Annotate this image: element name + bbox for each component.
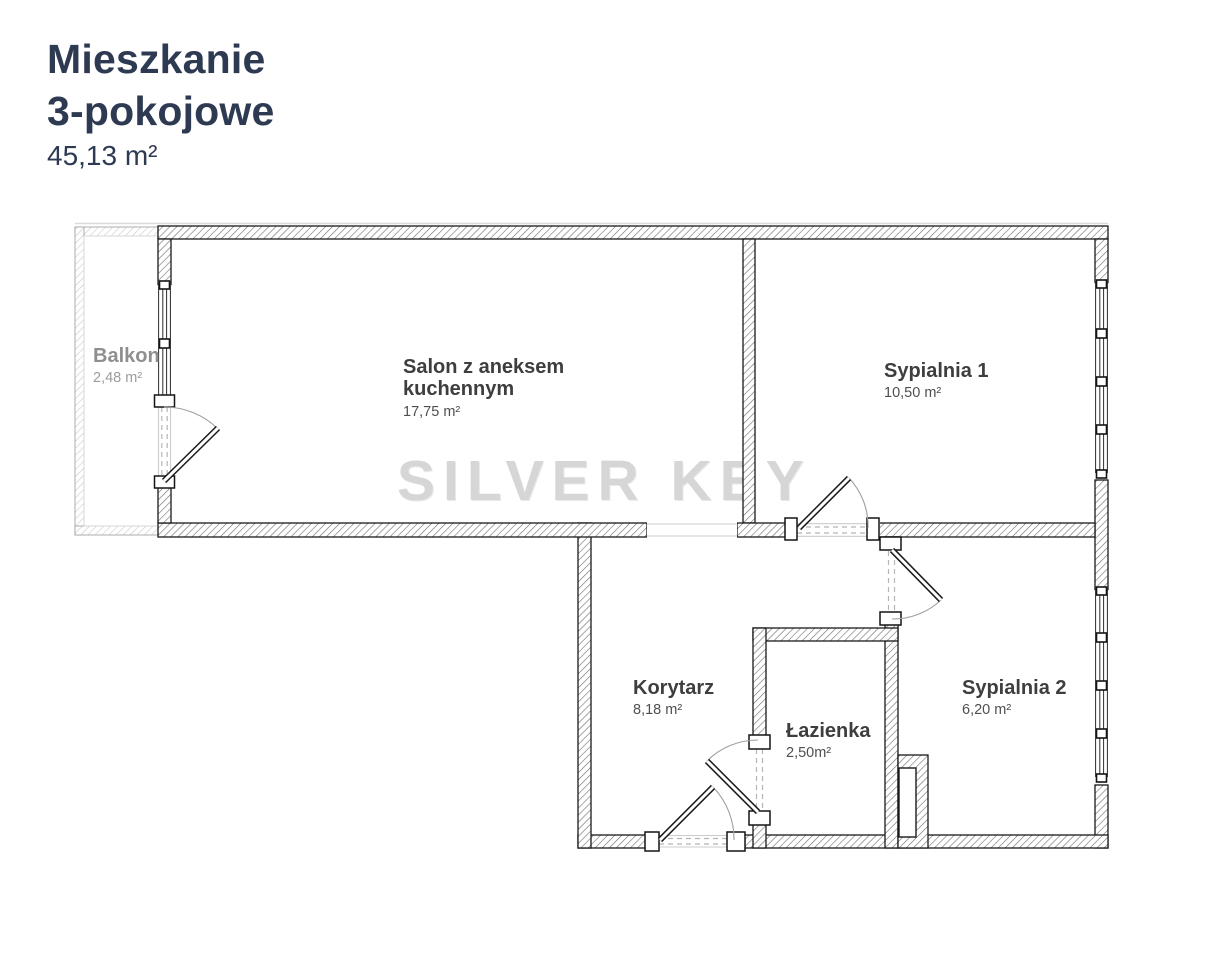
room-label-sypialnia-2: Sypialnia 2 6,20 m²: [962, 677, 1067, 718]
room-area-value: 17,75 m²: [403, 404, 564, 420]
room-area-value: 10,50 m²: [884, 385, 989, 401]
room-name: Sypialnia 2: [962, 677, 1067, 699]
wall-corridor-left: [578, 523, 591, 848]
room-area-value: 2,50m²: [786, 745, 870, 761]
wall-right-upper: [1095, 239, 1108, 283]
room-name: Korytarz: [633, 677, 714, 699]
floor-plan-svg: [0, 0, 1214, 960]
room-area-value: 6,20 m²: [962, 702, 1067, 718]
room-name: Łazienka: [786, 720, 870, 742]
room-name: Balkon: [93, 345, 160, 367]
floor-plan-page: Mieszkanie 3-pokojowe 45,13 m² SILVER KE…: [0, 0, 1214, 960]
sypialnia1-window: [1095, 280, 1109, 478]
duct-shaft-opening: [899, 768, 916, 837]
room-label-sypialnia-1: Sypialnia 1 10,50 m²: [884, 360, 989, 401]
wall-corridor-top-piece: [737, 523, 787, 537]
bathroom-door: [707, 735, 770, 825]
apartment-walls: [158, 226, 1108, 848]
wall-bathroom-left-upper: [753, 628, 766, 737]
room-area-value: 8,18 m²: [633, 702, 714, 718]
salon-corridor-passage: [647, 522, 737, 538]
wall-sypialnia-divider: [879, 523, 1095, 537]
room-label-salon: Salon z aneksem kuchennym 17,75 m²: [403, 356, 564, 420]
room-label-korytarz: Korytarz 8,18 m²: [633, 677, 714, 718]
wall-balcony-pier-lower: [158, 485, 171, 523]
wall-bathroom-right: [885, 615, 898, 848]
entrance-door: [645, 787, 745, 851]
wall-salon-bottom: [158, 523, 647, 537]
sypialnia2-window: [1095, 587, 1109, 782]
room-name: Salon z aneksem: [403, 356, 564, 378]
room-name: Sypialnia 1: [884, 360, 989, 382]
sypialnia2-door: [880, 537, 941, 625]
room-label-lazienka: Łazienka 2,50m²: [786, 720, 870, 761]
wall-bathroom-top: [753, 628, 898, 641]
room-name: kuchennym: [403, 378, 564, 400]
wall-right-middle: [1095, 480, 1108, 590]
room-area-value: 2,48 m²: [93, 370, 160, 386]
wall-salon-sypialnia1-divider: [743, 239, 755, 523]
sypialnia1-door: [785, 478, 880, 540]
wall-top: [158, 226, 1108, 239]
room-label-balkon: Balkon 2,48 m²: [93, 345, 160, 386]
wall-balcony-pier-upper: [158, 239, 171, 285]
balcony-door: [155, 395, 219, 488]
